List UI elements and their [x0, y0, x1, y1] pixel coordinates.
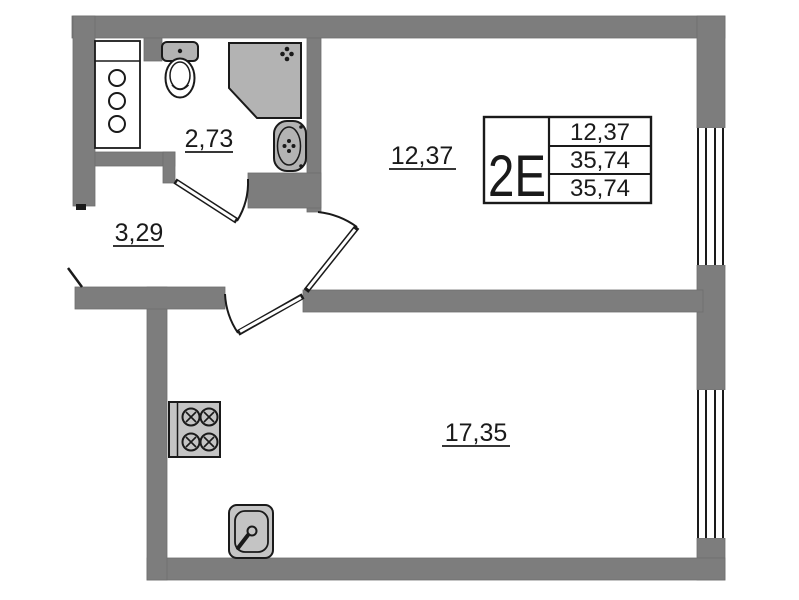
door-living-room: [225, 294, 303, 333]
room-label-living-room: 17,35: [445, 419, 508, 447]
window-lower: [696, 390, 726, 538]
wall-basin-block: [248, 173, 321, 208]
door-swing-icon: [225, 294, 238, 333]
window-opening: [696, 128, 726, 265]
toilet-icon: [162, 42, 198, 98]
door-jamb-tick: [76, 204, 86, 210]
wall-right-top: [697, 16, 725, 128]
floor-plan: 2,73 3,29 12,37 17,35 2Е 12,37 35,74 35,…: [0, 0, 799, 600]
stove-icon: [169, 402, 220, 457]
entrance-opening: [68, 204, 86, 287]
wall-left-upper: [73, 16, 95, 206]
floor-plan-page: 2,73 3,29 12,37 17,35 2Е 12,37 35,74 35,…: [0, 0, 799, 600]
wall-hall-bottom: [75, 287, 225, 309]
door-swing-icon: [318, 212, 357, 227]
room-label-bedroom: 12,37: [391, 142, 454, 170]
table-value-total-area: 35,74: [570, 147, 630, 174]
shower-cabin-icon: [229, 43, 301, 118]
window-upper: [696, 128, 726, 265]
wall-middle-right: [303, 290, 703, 312]
area-summary-table: 2Е 12,37 35,74 35,74: [484, 117, 651, 209]
door-bedroom: [306, 212, 357, 291]
room-label-bathroom: 2,73: [185, 125, 234, 153]
wall-top: [72, 16, 725, 38]
wall-living-left: [147, 287, 167, 580]
unit-type-label: 2Е: [488, 144, 546, 209]
wall-right-pier: [697, 265, 725, 390]
kitchen-sink-icon: [229, 505, 273, 558]
bathroom-cabinet-icon: [95, 41, 140, 148]
washbasin-icon: [274, 121, 306, 171]
room-label-hallway: 3,29: [115, 219, 164, 247]
walls: [72, 16, 725, 580]
table-value-room-area: 12,37: [570, 119, 630, 146]
door-swing-icon: [237, 179, 248, 221]
wall-bath-step: [163, 152, 175, 183]
door-swing-icon: [68, 268, 82, 287]
window-opening: [696, 390, 726, 538]
wall-bottom: [147, 558, 725, 580]
door-bathroom: [175, 179, 248, 221]
wall-pilaster: [144, 38, 162, 61]
table-value-overall-area: 35,74: [570, 175, 630, 202]
